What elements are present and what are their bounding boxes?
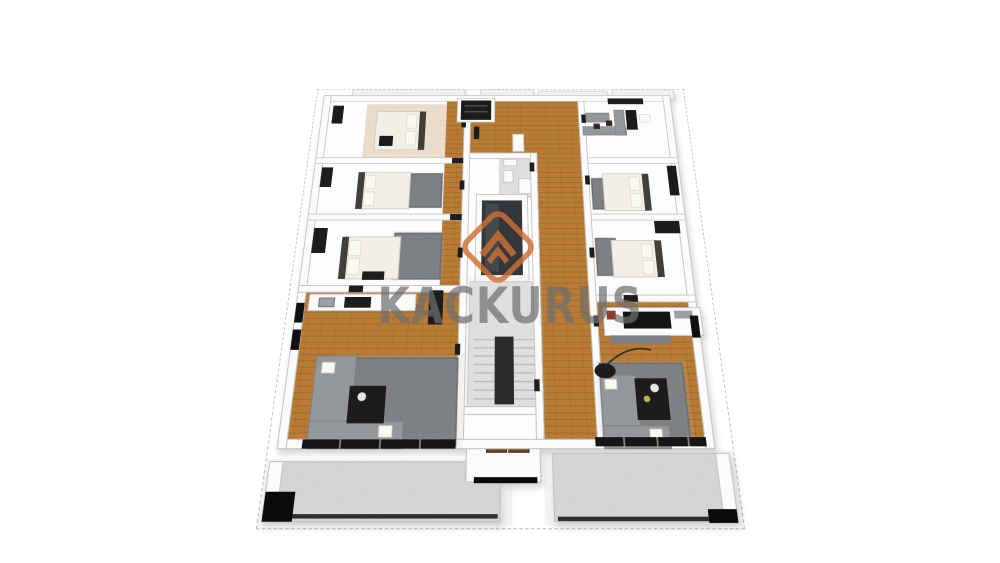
kitchen-niche-top bbox=[457, 98, 495, 122]
stair-railing bbox=[495, 337, 515, 405]
wardrobe bbox=[654, 221, 681, 233]
kitchen-sink bbox=[319, 298, 335, 307]
balcony-railing bbox=[558, 517, 735, 521]
bedroom-bench bbox=[379, 136, 393, 146]
sideboard bbox=[607, 98, 643, 104]
elevator bbox=[475, 195, 529, 282]
coffee-table bbox=[346, 386, 386, 424]
entry-shadow bbox=[474, 477, 538, 483]
cooktop-unit bbox=[461, 101, 492, 120]
balcony-shadow bbox=[262, 492, 296, 522]
balcony-right bbox=[552, 453, 738, 523]
floor-plan-svg bbox=[257, 90, 744, 528]
sink bbox=[504, 159, 517, 165]
shelf-dark bbox=[625, 110, 638, 130]
media-console bbox=[610, 336, 671, 344]
toilet bbox=[504, 171, 513, 182]
floor-plan-3d bbox=[256, 89, 745, 529]
balcony-shadow bbox=[708, 509, 739, 523]
balcony-railing bbox=[265, 514, 497, 518]
chair bbox=[593, 124, 600, 129]
wardrobe bbox=[331, 106, 344, 124]
render-canvas: KACKURUS bbox=[0, 0, 1000, 563]
hall-door-frame bbox=[474, 127, 480, 139]
balcony-glass-door bbox=[595, 437, 707, 446]
desk-return bbox=[614, 110, 626, 135]
elevator-sheen bbox=[485, 204, 499, 272]
dresser bbox=[362, 271, 385, 279]
staircase bbox=[467, 282, 542, 409]
tv-screen bbox=[623, 312, 672, 329]
cooktop bbox=[344, 297, 371, 308]
fridge bbox=[428, 290, 444, 324]
balcony-left bbox=[262, 462, 500, 522]
chair bbox=[606, 121, 613, 126]
balcony-glass-door bbox=[302, 439, 456, 448]
hall-cabinet bbox=[513, 134, 524, 151]
shelf-decor bbox=[606, 311, 616, 320]
